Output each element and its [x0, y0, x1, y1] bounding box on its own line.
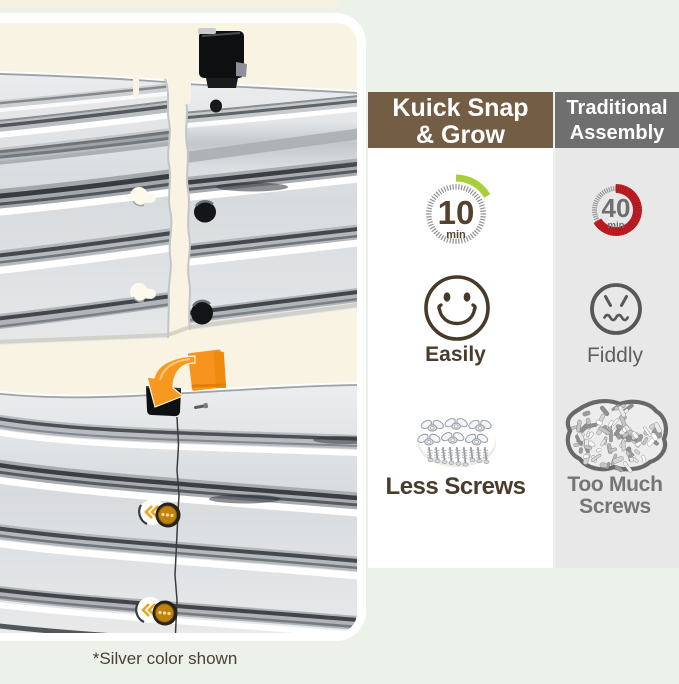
svg-text:min: min	[446, 229, 466, 241]
svg-text:40: 40	[602, 193, 631, 223]
svg-text:min: min	[608, 220, 625, 231]
svg-text:10: 10	[438, 194, 475, 231]
